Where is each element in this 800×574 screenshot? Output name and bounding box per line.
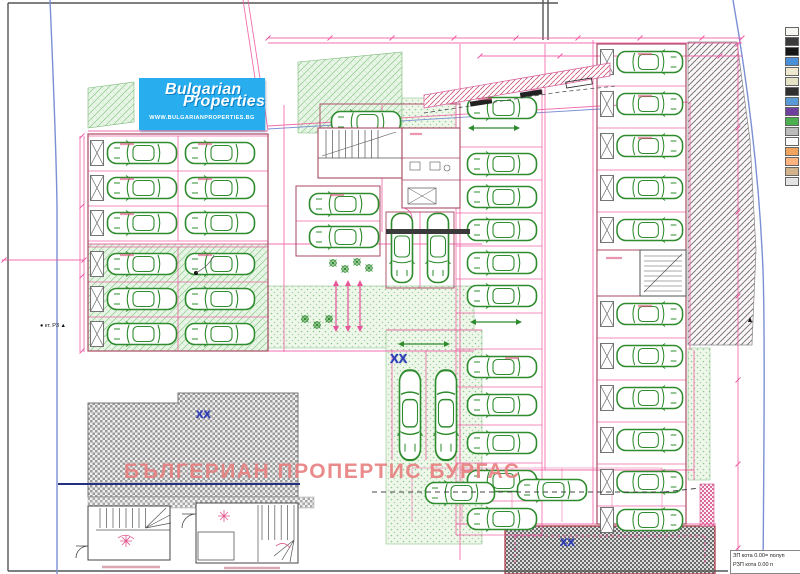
crossed-box-icon xyxy=(91,287,104,312)
crossed-box-icon xyxy=(601,344,614,369)
legend-swatch xyxy=(785,127,799,136)
car-icon xyxy=(468,185,537,210)
tree-icon xyxy=(353,258,361,266)
car-icon xyxy=(426,214,451,283)
legend-swatch xyxy=(785,97,799,106)
crossed-box-icon xyxy=(91,141,104,166)
car-icon xyxy=(617,218,683,243)
crossed-box-icon xyxy=(601,134,614,159)
car-icon xyxy=(108,252,177,277)
tree-icon xyxy=(341,265,349,273)
car-icon xyxy=(434,370,459,460)
car-icon xyxy=(468,355,537,380)
car-icon xyxy=(186,176,255,201)
parcel-mark-2: XX xyxy=(196,409,211,421)
car-icon xyxy=(186,141,255,166)
car-icon xyxy=(468,218,537,243)
car-icon xyxy=(468,284,537,309)
site-plan-drawing: ● кт. Р3 ▲ xyxy=(0,0,800,574)
tree-icon xyxy=(329,259,337,267)
crossed-box-icon xyxy=(601,302,614,327)
legend-swatch xyxy=(785,147,799,156)
crossed-box-icon xyxy=(601,176,614,201)
car-icon xyxy=(108,141,177,166)
legend-swatch xyxy=(785,107,799,116)
aisle-arrow-icon xyxy=(470,319,522,325)
legend-swatch xyxy=(785,77,799,86)
car-icon xyxy=(186,322,255,347)
survey-point-label: ● кт. Р3 ▲ xyxy=(40,323,66,329)
legend-swatch xyxy=(785,57,799,66)
legend-swatch xyxy=(785,27,799,36)
stair-detail-2 xyxy=(182,503,298,563)
legend-swatch xyxy=(785,137,799,146)
legend-swatch xyxy=(785,117,799,126)
car-icon xyxy=(468,96,537,121)
car-icon xyxy=(108,211,177,236)
legend-swatch xyxy=(785,37,799,46)
car-icon xyxy=(617,176,683,201)
car-icon xyxy=(617,344,683,369)
car-icon xyxy=(108,322,177,347)
car-icon xyxy=(468,507,537,532)
car-icon xyxy=(617,428,683,453)
legend-swatch xyxy=(785,157,799,166)
legend-swatch xyxy=(785,167,799,176)
stair-detail-1 xyxy=(76,506,171,560)
crossed-box-icon xyxy=(601,92,614,117)
area-note-box: ЗП кота 0.00= полуп РЗП кота 0.00 п xyxy=(730,550,800,574)
crossed-box-icon xyxy=(601,470,614,495)
legend-swatch xyxy=(785,177,799,186)
car-icon xyxy=(468,251,537,276)
logo-text-line2: Properties xyxy=(183,93,265,111)
car-icon xyxy=(617,508,683,533)
crossed-box-icon xyxy=(601,218,614,243)
car-icon xyxy=(186,287,255,312)
legend-swatch xyxy=(785,87,799,96)
area-note-line1: ЗП кота 0.00= полуп xyxy=(733,552,800,561)
car-icon xyxy=(518,478,587,503)
car-icon xyxy=(390,214,415,283)
car-icon xyxy=(310,225,379,250)
car-icon xyxy=(398,370,423,460)
tree-icon xyxy=(313,321,321,329)
car-icon xyxy=(186,211,255,236)
tree-icon xyxy=(301,315,309,323)
area-note-line2: РЗП кота 0.00 п xyxy=(733,561,800,570)
crossed-box-icon xyxy=(601,428,614,453)
crossed-box-icon xyxy=(91,176,104,201)
aisle-arrow-icon xyxy=(468,125,520,131)
car-icon xyxy=(468,393,537,418)
legend-swatch xyxy=(785,47,799,56)
car-icon xyxy=(468,152,537,177)
legend-strip xyxy=(785,27,799,187)
car-icon xyxy=(617,470,683,495)
crossed-box-icon xyxy=(601,386,614,411)
car-icon xyxy=(108,287,177,312)
car-icon xyxy=(426,481,495,506)
car-icon xyxy=(468,431,537,456)
parcel-mark-3: XX xyxy=(560,537,575,549)
crossed-box-icon xyxy=(91,322,104,347)
tree-icon xyxy=(365,264,373,272)
parcel-mark-1: XX xyxy=(390,351,407,366)
car-icon xyxy=(617,386,683,411)
watermark-text: БЪЛГЕРИАН ПРОПЕРТИС БУРГАС xyxy=(124,460,520,484)
tree-icon xyxy=(325,315,333,323)
agency-logo: Bulgarian Properties WWW.BULGARIANPROPER… xyxy=(139,78,265,130)
logo-url: WWW.BULGARIANPROPERTIES.BG xyxy=(139,115,265,121)
legend-swatch xyxy=(785,67,799,76)
crossed-box-icon xyxy=(601,508,614,533)
crossed-box-icon xyxy=(91,211,104,236)
car-icon xyxy=(108,176,177,201)
floorplan-canvas: ● кт. Р3 ▲ Bulgarian Properties WWW.BULG… xyxy=(0,0,800,574)
crossed-box-icon xyxy=(91,252,104,277)
